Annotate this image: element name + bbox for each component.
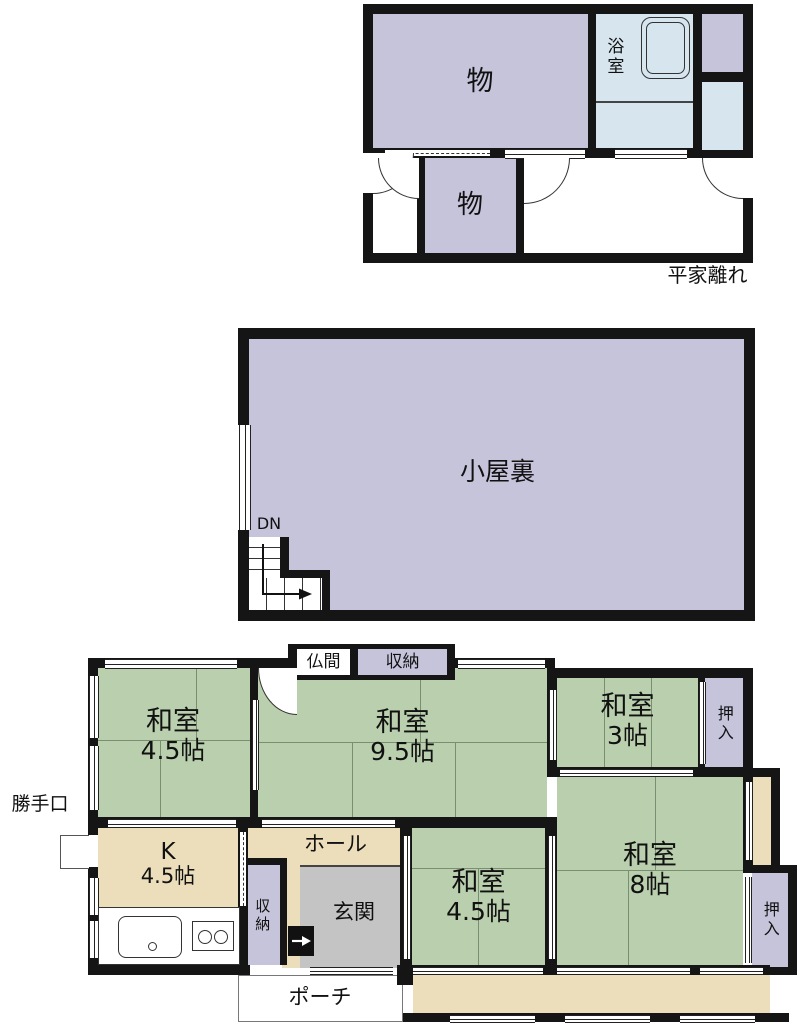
wall [88,965,250,975]
room-label: 小屋裏 [425,456,570,488]
window [450,1015,535,1023]
window [89,746,99,810]
room-annex-se [702,82,743,150]
back-door-label: 勝手口 [0,790,80,818]
sliding-door [549,690,557,760]
wall [397,965,413,985]
back-door-opening [88,835,98,867]
wall [238,610,755,621]
room-label-oshiire-ne: 押入 [707,690,741,758]
room-label-washitsu-e: 和室8帖 [585,836,715,904]
stairs-arrow [250,538,320,604]
room-label-oshiire-se: 押入 [753,886,787,954]
sliding-door [699,682,706,764]
sliding-door [108,819,236,828]
bath-divider [596,101,693,103]
room-label-washitsu-center: 和室9.5帖 [330,703,475,771]
room-label-kitchen: K4.5帖 [110,833,226,895]
wall [238,530,249,621]
wall [771,777,780,865]
wall [743,4,753,158]
window [105,659,237,669]
sliding-door [252,700,259,790]
wall [743,768,780,777]
wall [238,328,755,339]
stairs-label: DN [249,513,289,535]
wall [547,668,753,678]
door-arc [702,158,743,199]
room-label-porch: ポーチ [255,984,385,1012]
window [413,967,543,975]
veranda-right [753,777,771,865]
sliding-door [745,877,752,963]
room-label-butsuma: 仏間 [297,649,350,675]
window [615,149,687,159]
room-label-entrance: 玄関 [318,898,390,928]
room-label-washitsu-s: 和室4.5帖 [415,864,542,930]
wall [280,865,287,965]
room-label-washitsu-nw: 和室4.5帖 [104,703,242,769]
wall [238,328,249,425]
room-label-closet-top: 収納 [358,649,447,675]
veranda-bottom [413,975,770,1013]
stove-icon [192,921,234,951]
window [680,1015,755,1023]
window [89,676,99,738]
wall [743,668,753,777]
wall [322,578,330,610]
back-door-landing [60,835,89,869]
floor-plan: 物 浴室 物 平家離れ DN 小屋裏 [0,0,798,1024]
wall [743,198,753,263]
wall [363,4,753,14]
bathtub-icon [641,17,690,79]
room-label-washitsu-ne: 和室3帖 [560,690,695,752]
wall [693,14,702,150]
wall [702,72,743,82]
wall [744,328,755,621]
wall [788,865,797,975]
annex-caption: 平家離れ [655,262,760,288]
room-label: 物 [420,65,540,99]
entrance-step-arrow [290,934,314,948]
sliding-door [548,836,556,959]
entrance-door [310,967,393,975]
sliding-door [262,819,395,828]
room-label: 物 [412,188,528,222]
room-label: 浴室 [600,26,626,88]
room-label-closet-entry: 収納 [245,875,279,957]
sliding-door [560,769,693,777]
shoji-window [745,782,753,860]
window [565,1015,650,1023]
entrance-edge [300,865,403,867]
sliding-door [403,836,411,959]
room-label-hall: ホール [278,830,393,860]
window [700,967,763,975]
wall [588,14,596,150]
window [458,659,545,669]
room-annex-ne [702,14,743,72]
window [557,967,690,975]
wall [363,4,373,153]
door-arc [524,158,570,204]
sink-icon [118,916,182,958]
wall [693,150,753,158]
